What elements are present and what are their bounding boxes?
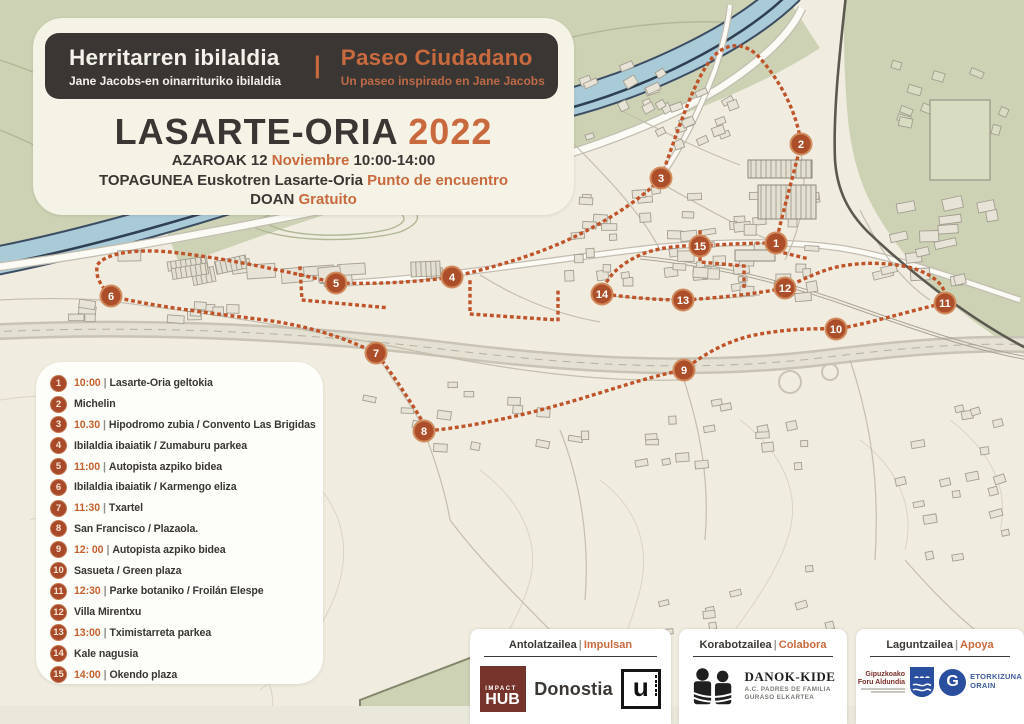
date-spanish: Noviembre bbox=[272, 152, 350, 169]
event-title-box: Herritarren ibilaldia Jane Jacobs-en oin… bbox=[45, 33, 558, 99]
legend-item-text: Villa Mirentxu bbox=[74, 606, 141, 618]
svg-text:8: 8 bbox=[421, 426, 427, 438]
legend-item-text: 10:00|Lasarte-Oria geltokia bbox=[74, 377, 213, 389]
route-stop-badge: 2 bbox=[50, 396, 67, 413]
legend-item: 310.30|Hipodromo zubia / Convento Las Br… bbox=[50, 415, 315, 436]
legend-item-text: Ibilaldia ibaiatik / Karmengo eliza bbox=[74, 481, 237, 493]
route-stop-badge: 9 bbox=[50, 541, 67, 558]
meeting-line: TOPAGUNEA Euskotren Lasarte-Oria Punto d… bbox=[33, 171, 574, 191]
svg-text:7: 7 bbox=[373, 348, 379, 360]
meeting-basque: TOPAGUNEA Euskotren Lasarte-Oria bbox=[99, 172, 363, 189]
route-stop-badge: 3 bbox=[50, 416, 67, 433]
legend-item-text: 11:00|Autopista azpiko bidea bbox=[74, 461, 222, 473]
svg-text:4: 4 bbox=[449, 272, 456, 284]
free-spanish: Gratuito bbox=[299, 191, 357, 208]
gipuzkoa-logo-text: Gipuzkoako Foru Aldundia bbox=[858, 671, 905, 693]
organizer-label-es: Impulsan bbox=[584, 639, 632, 651]
map-marker: 1 bbox=[766, 233, 787, 254]
route-stop-badge: 4 bbox=[50, 437, 67, 454]
collaborator-label-es: Colabora bbox=[779, 639, 827, 651]
route-stop-badge: 8 bbox=[50, 520, 67, 537]
route-stop-badge: 14 bbox=[50, 645, 67, 662]
u-logo-vertical-text bbox=[655, 675, 657, 696]
legend-item: 1313:00|Tximistarreta parkea bbox=[50, 623, 315, 644]
map-marker: 5 bbox=[326, 273, 347, 294]
etorkizuna-text: ETORKIZUNA ORAIN bbox=[970, 673, 1022, 690]
route-stop-badge: 10 bbox=[50, 562, 67, 579]
city-title: LASARTE-ORIA 2022 bbox=[33, 111, 574, 153]
legend-item-text: Kale nagusia bbox=[74, 648, 138, 660]
map-marker: 13 bbox=[673, 290, 694, 311]
event-poster: { "poster": { "title_eu": "Herritarren i… bbox=[0, 0, 1024, 724]
legend-item: 6Ibilaldia ibaiatik / Karmengo eliza bbox=[50, 477, 315, 498]
map-marker: 7 bbox=[366, 343, 387, 364]
map-marker: 14 bbox=[592, 284, 613, 305]
svg-text:10: 10 bbox=[830, 324, 842, 336]
route-stop-badge: 13 bbox=[50, 624, 67, 641]
map-marker: 12 bbox=[775, 278, 796, 299]
route-stop-badge: 6 bbox=[50, 479, 67, 496]
route-stop-badge: 12 bbox=[50, 604, 67, 621]
divider-line bbox=[484, 656, 657, 657]
svg-text:3: 3 bbox=[658, 173, 664, 185]
date-line: AZAROAK 12 Noviembre 10:00-14:00 bbox=[33, 151, 574, 171]
title-divider: | bbox=[314, 52, 321, 80]
legend-item: 4Ibilaldia ibaiatik / Zumaburu parkea bbox=[50, 435, 315, 456]
map-marker: 4 bbox=[442, 267, 463, 288]
svg-text:13: 13 bbox=[677, 295, 689, 307]
legend-item: 2Michelin bbox=[50, 394, 315, 415]
date-basque: AZAROAK 12 bbox=[172, 152, 268, 169]
impact-hub-donostia-label: Donostia bbox=[534, 679, 613, 700]
svg-text:9: 9 bbox=[681, 365, 687, 377]
map-marker: 11 bbox=[935, 293, 956, 314]
title-spanish: Paseo Ciudadano bbox=[341, 45, 558, 71]
map-marker: 10 bbox=[826, 319, 847, 340]
svg-text:1: 1 bbox=[773, 238, 779, 250]
legend-item: 10Sasueta / Green plaza bbox=[50, 560, 315, 581]
svg-text:11: 11 bbox=[939, 298, 951, 310]
impact-hub-logo: IMPACT HUB bbox=[480, 666, 526, 712]
svg-text:12: 12 bbox=[779, 283, 791, 295]
legend-item-text: 14:00|Okendo plaza bbox=[74, 669, 177, 681]
legend-item-text: Sasueta / Green plaza bbox=[74, 565, 181, 577]
meeting-spanish: Punto de encuentro bbox=[367, 172, 508, 189]
legend-item: 711:30|Txartel bbox=[50, 498, 315, 519]
footer-organizer-panel: Antolatzailea|Impulsan IMPACT HUB Donost… bbox=[470, 629, 671, 724]
legend-item-text: 11:30|Txartel bbox=[74, 502, 143, 514]
svg-text:6: 6 bbox=[108, 291, 114, 303]
legend-item: 12Villa Mirentxu bbox=[50, 602, 315, 623]
footer-collaborator-title: Korabotzailea|Colabora bbox=[679, 639, 847, 651]
route-stop-badge: 7 bbox=[50, 500, 67, 517]
map-marker: 6 bbox=[101, 286, 122, 307]
route-stop-badge: 1 bbox=[50, 375, 67, 392]
map-marker: 8 bbox=[414, 421, 435, 442]
divider-line bbox=[693, 656, 833, 657]
gipuzkoa-shield-icon bbox=[909, 666, 935, 698]
legend-item: 1112:30|Parke botaniko / Froilán Elespe bbox=[50, 581, 315, 602]
supporter-label-eu: Laguntzailea bbox=[886, 639, 953, 651]
legend-item-text: 10.30|Hipodromo zubia / Convento Las Bri… bbox=[74, 419, 316, 431]
free-line: DOAN Gratuito bbox=[33, 190, 574, 210]
legend-item-text: 12:30|Parke botaniko / Froilán Elespe bbox=[74, 585, 264, 597]
danok-kide-figures-icon bbox=[691, 666, 737, 706]
legend-item: 8San Francisco / Plazaola. bbox=[50, 519, 315, 540]
footer-supporter-panel: Laguntzailea|Apoya Gipuzkoako Foru Aldun… bbox=[856, 629, 1024, 724]
legend-item-text: Ibilaldia ibaiatik / Zumaburu parkea bbox=[74, 440, 247, 452]
footer-supporter-title: Laguntzailea|Apoya bbox=[856, 639, 1024, 651]
collaborator-label-eu: Korabotzailea bbox=[700, 639, 772, 651]
legend-item: 1514:00|Okendo plaza bbox=[50, 664, 315, 685]
svg-text:15: 15 bbox=[694, 241, 706, 253]
divider-line bbox=[870, 656, 1010, 657]
legend-item-text: 12: 00|Autopista azpiko bidea bbox=[74, 544, 226, 556]
legend-item: 110:00|Lasarte-Oria geltokia bbox=[50, 373, 315, 394]
map-marker: 15 bbox=[690, 236, 711, 257]
route-stop-badge: 11 bbox=[50, 583, 67, 600]
u-logo: u bbox=[621, 669, 661, 709]
title-basque: Herritarren ibilaldia bbox=[69, 45, 314, 71]
route-stop-badge: 15 bbox=[50, 666, 67, 683]
legend-item: 511:00|Autopista azpiko bidea bbox=[50, 456, 315, 477]
event-year: 2022 bbox=[408, 111, 492, 152]
footer-collaborator-panel: Korabotzailea|Colabora DANOK-KIDE A.C. P… bbox=[679, 629, 847, 724]
map-marker: 3 bbox=[651, 168, 672, 189]
subtitle-spanish: Un paseo inspirado en Jane Jacobs bbox=[341, 74, 558, 88]
svg-text:14: 14 bbox=[596, 289, 609, 301]
footer-organizer-title: Antolatzailea|Impulsan bbox=[470, 639, 671, 651]
danok-kide-name: DANOK-KIDE bbox=[745, 670, 836, 685]
etorkizuna-g-logo: G bbox=[939, 669, 966, 696]
event-hours: 10:00-14:00 bbox=[354, 152, 436, 169]
subtitle-basque: Jane Jacobs-en oinarrituriko ibilaldia bbox=[69, 74, 314, 88]
free-basque: DOAN bbox=[250, 191, 294, 208]
legend-item: 912: 00|Autopista azpiko bidea bbox=[50, 539, 315, 560]
svg-text:5: 5 bbox=[333, 278, 339, 290]
legend-item-text: 13:00|Tximistarreta parkea bbox=[74, 627, 211, 639]
legend-item: 14Kale nagusia bbox=[50, 643, 315, 664]
legend-item-text: Michelin bbox=[74, 398, 116, 410]
map-marker: 9 bbox=[674, 360, 695, 381]
route-stop-badge: 5 bbox=[50, 458, 67, 475]
event-info: AZAROAK 12 Noviembre 10:00-14:00 TOPAGUN… bbox=[33, 151, 574, 210]
header-panel: Herritarren ibilaldia Jane Jacobs-en oin… bbox=[33, 18, 574, 215]
organizer-label-eu: Antolatzailea bbox=[509, 639, 577, 651]
map-marker: 2 bbox=[791, 134, 812, 155]
svg-text:2: 2 bbox=[798, 139, 804, 151]
route-legend-panel: 110:00|Lasarte-Oria geltokia2Michelin310… bbox=[36, 362, 323, 684]
supporter-label-es: Apoya bbox=[960, 639, 994, 651]
legend-item-text: San Francisco / Plazaola. bbox=[74, 523, 198, 535]
city-name: LASARTE-ORIA bbox=[115, 111, 398, 152]
route-legend-list: 110:00|Lasarte-Oria geltokia2Michelin310… bbox=[36, 362, 323, 685]
